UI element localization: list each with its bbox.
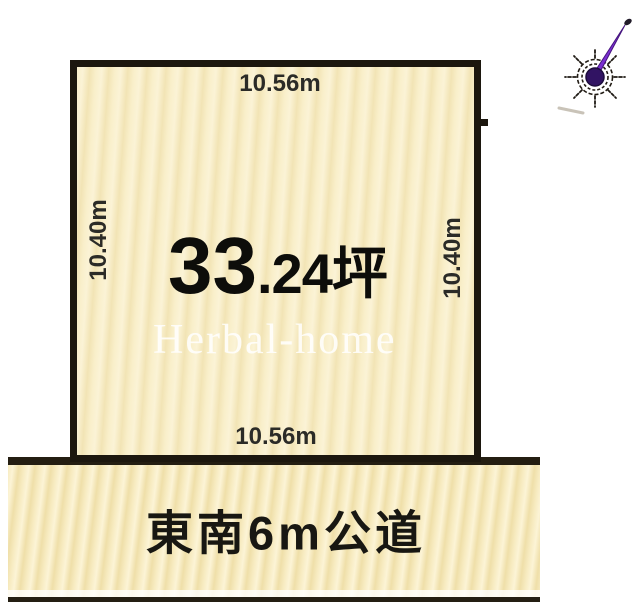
plot-area-unit: .24坪 (257, 242, 387, 305)
dimension-bottom: 10.56m (235, 423, 316, 451)
plot-area-label: 33.24坪 (168, 226, 387, 306)
north-arrow-compass-icon (552, 12, 644, 118)
land-plot-diagram: 東南6m公道 10.56m 10.40m 10.40m 10.56m 33.24… (0, 0, 644, 608)
road-label: 東南6m公道 (146, 495, 426, 564)
dimension-right: 10.40m (439, 217, 467, 298)
dimension-left: 10.40m (85, 199, 113, 280)
plot-border-notch (479, 119, 488, 126)
road-bottom-highlight (8, 590, 540, 597)
plot-area-value: 33 (168, 221, 257, 310)
dimension-top: 10.56m (239, 70, 320, 98)
watermark-text: Herbal-home (153, 316, 397, 364)
